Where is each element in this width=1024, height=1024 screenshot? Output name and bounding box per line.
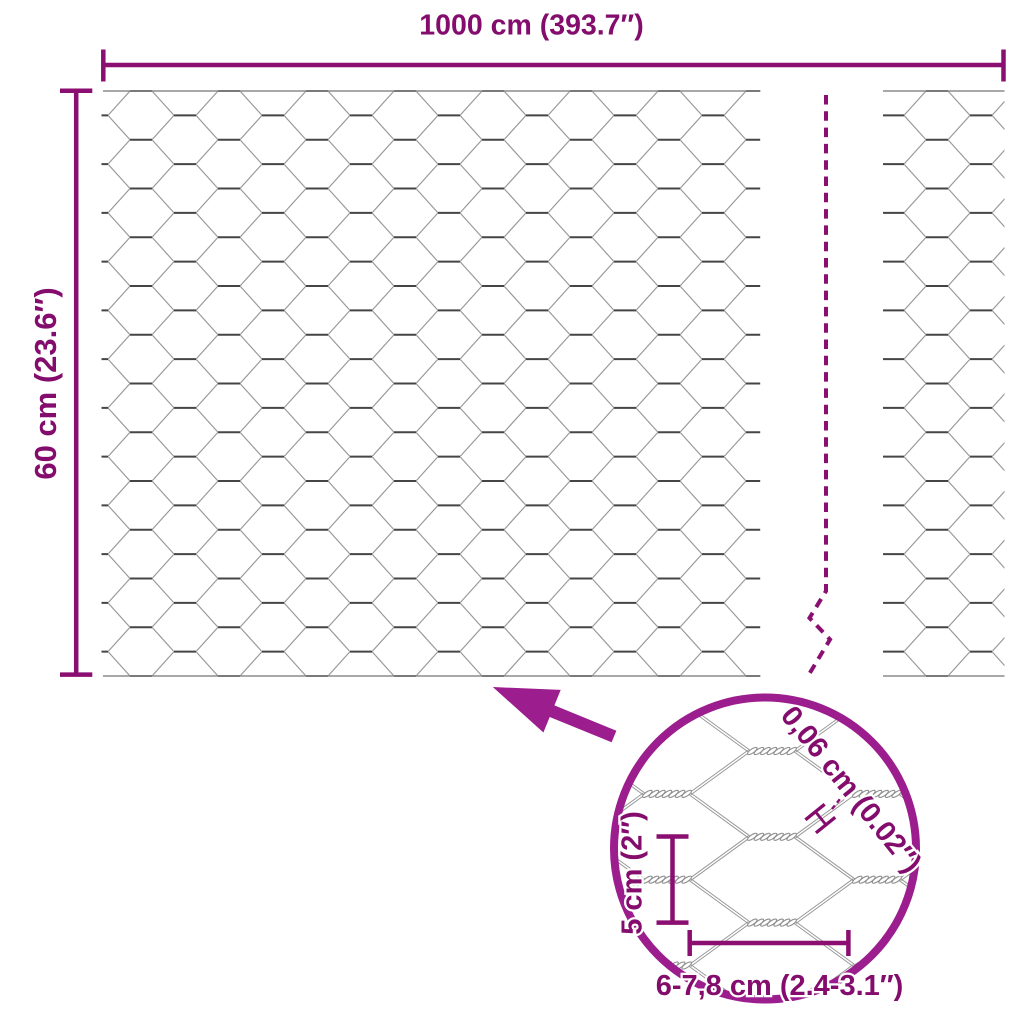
svg-text:1000 cm (393.7″): 1000 cm (393.7″): [419, 10, 643, 42]
svg-text:60 cm (23.6″): 60 cm (23.6″): [28, 287, 63, 479]
svg-text:5 cm (2″): 5 cm (2″): [617, 811, 649, 935]
svg-text:6-7,8 cm (2.4-3.1″): 6-7,8 cm (2.4-3.1″): [656, 970, 904, 1002]
